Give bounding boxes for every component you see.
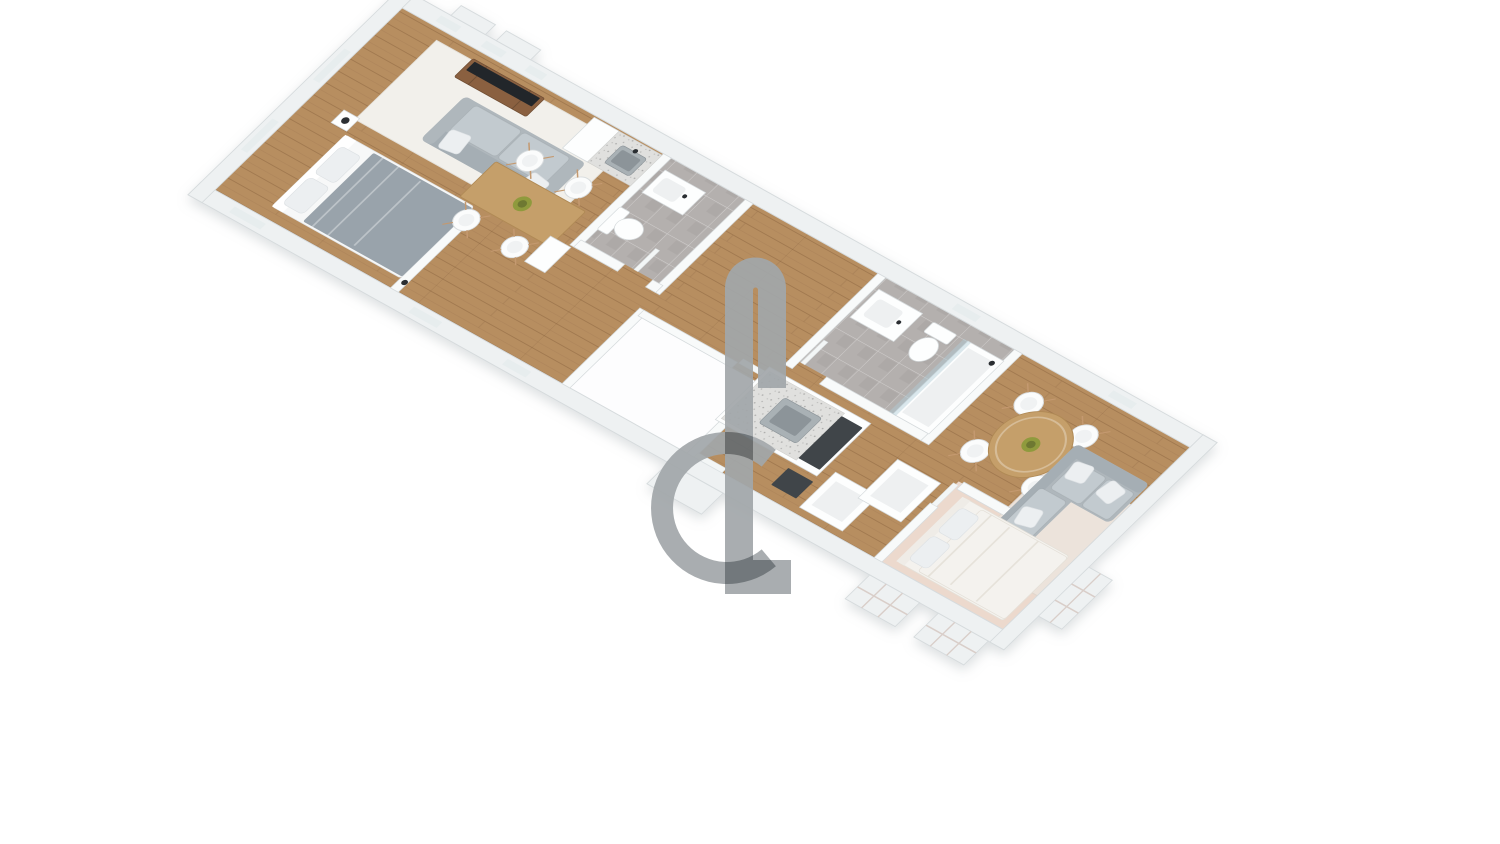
floor-plan-render bbox=[0, 0, 1500, 844]
building-group bbox=[164, 0, 1251, 687]
floor-plan-canvas bbox=[0, 0, 1500, 844]
floors-group bbox=[215, 8, 1190, 629]
